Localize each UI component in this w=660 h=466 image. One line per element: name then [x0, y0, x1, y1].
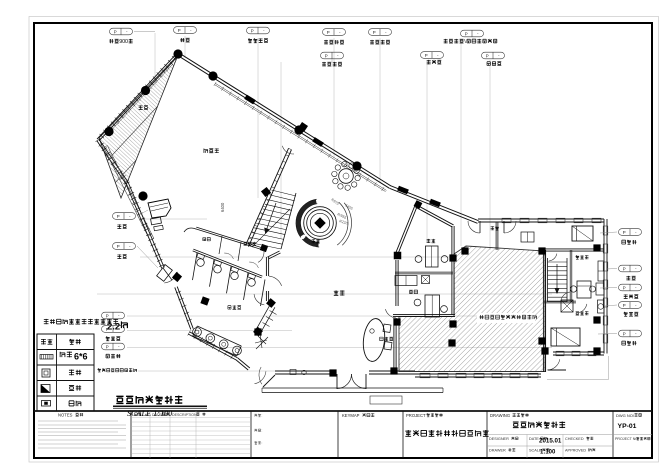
- svg-text:DWG NO/: DWG NO/: [616, 413, 635, 418]
- svg-text:P: P: [425, 53, 428, 58]
- svg-text:P: P: [465, 31, 468, 36]
- svg-text:KEYMAP: KEYMAP: [342, 413, 360, 418]
- svg-text:P: P: [486, 53, 489, 58]
- svg-text:2015.01: 2015.01: [539, 438, 562, 445]
- svg-text:6400: 6400: [220, 202, 225, 212]
- svg-text:P: P: [623, 230, 626, 235]
- svg-text:P: P: [106, 313, 109, 318]
- svg-text:P: P: [114, 29, 117, 34]
- svg-text:DESCRIPTION: DESCRIPTION: [172, 413, 197, 417]
- svg-text:6*6: 6*6: [74, 352, 88, 362]
- svg-text:NOTES: NOTES: [58, 413, 73, 418]
- svg-text:P: P: [325, 53, 328, 58]
- svg-text:APPROVED: APPROVED: [565, 449, 586, 453]
- svg-text:CHECKED: CHECKED: [565, 437, 584, 441]
- svg-text:P: P: [117, 214, 120, 219]
- svg-text:P: P: [623, 331, 626, 336]
- svg-text:P: P: [623, 303, 626, 308]
- svg-text::: :: [261, 441, 262, 445]
- svg-text:P: P: [623, 285, 626, 290]
- svg-text:DESIGNER: DESIGNER: [489, 437, 509, 441]
- svg-text:DATE: DATE: [529, 437, 539, 441]
- svg-text:P: P: [251, 28, 254, 33]
- svg-text:1:100: 1:100: [540, 450, 556, 456]
- svg-text:DRAWING: DRAWING: [490, 413, 510, 418]
- svg-text:P: P: [117, 244, 120, 249]
- svg-text:YP-01: YP-01: [618, 423, 637, 430]
- svg-text:PROJECT: PROJECT: [406, 413, 426, 418]
- svg-text:P: P: [327, 30, 330, 35]
- svg-text:SCALE 1:100: SCALE 1:100: [127, 409, 172, 418]
- svg-text:P: P: [623, 266, 626, 271]
- svg-text::: :: [261, 414, 262, 418]
- svg-text::: :: [261, 429, 262, 433]
- svg-text:P: P: [178, 28, 181, 33]
- svg-text:DRAWER: DRAWER: [489, 449, 506, 453]
- svg-text:P: P: [106, 344, 109, 349]
- svg-text:900: 900: [119, 39, 128, 45]
- svg-text:P: P: [106, 327, 109, 332]
- svg-text:PROJECT NO.: PROJECT NO.: [615, 437, 639, 441]
- svg-text:P: P: [373, 30, 376, 35]
